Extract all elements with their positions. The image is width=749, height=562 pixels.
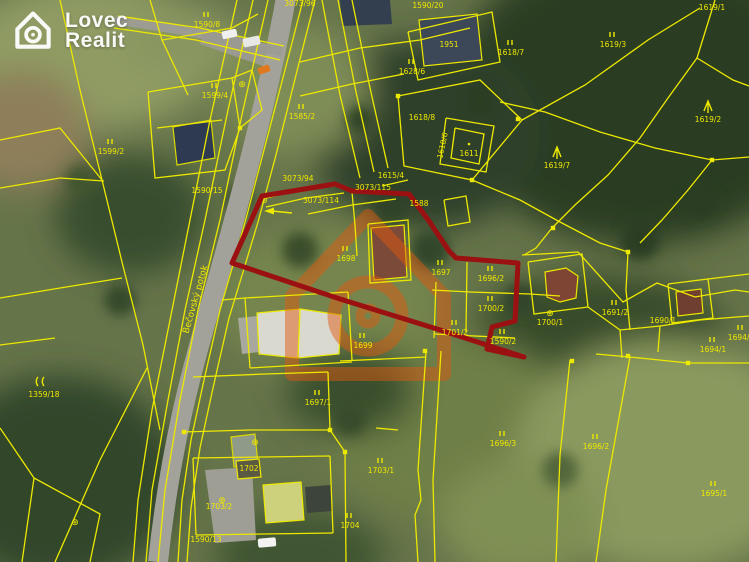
survey-node-marker: [238, 126, 242, 130]
lovec-realit-logo-icon: [10, 8, 56, 54]
building-footprint: [263, 482, 304, 523]
survey-node-marker: [343, 450, 347, 454]
parcel-number-text: 3073/114: [303, 196, 339, 205]
parcel-number-text: 1700/1: [537, 318, 564, 327]
parcel-number-text: 1590/15: [191, 186, 222, 195]
parcel-label: 3073/96: [284, 0, 315, 8]
brand-name-line1: Lovec: [65, 11, 128, 31]
parcel-label: 3073/114: [303, 196, 339, 205]
parcel-number-text: 1698: [336, 254, 355, 263]
parcel-number-text: 1704: [340, 521, 359, 530]
parcel-number-text: 1694/2: [728, 333, 749, 342]
building-footprint: [305, 485, 333, 513]
parcel-number-text: 1590/2: [490, 337, 517, 346]
parcel-number-text: 1691/2: [602, 308, 629, 317]
parcel-number-text: 1702: [239, 464, 258, 473]
survey-node-marker: [182, 430, 186, 434]
survey-node-marker: [570, 359, 574, 363]
parcel-number-text: 3073/96: [284, 0, 315, 8]
parcel-label: 1590/13: [190, 535, 221, 544]
parcel-number-text: 1628/6: [399, 67, 426, 76]
dot-symbol-icon: [468, 143, 471, 146]
parcel-number-text: 1699: [353, 341, 372, 350]
parcel-number-text: 1700/2: [478, 304, 505, 313]
parcel-number-text: 1695/1: [701, 489, 728, 498]
parcel-number-text: 1590/8: [194, 20, 221, 29]
parcel-number-text: 1619/2: [695, 115, 722, 124]
parcel-number-text: 1696/2: [583, 442, 610, 451]
parcel-label: 3073/115: [355, 183, 391, 192]
parcel-number-text: 3073/94: [282, 174, 313, 183]
parcel-number-text: 1599/2: [98, 147, 125, 156]
parcel-number-text: 1585/2: [289, 112, 316, 121]
vehicle: [258, 537, 277, 548]
parcel-number-text: 1615/4: [378, 171, 405, 180]
parcel-number-text: 1618/8: [409, 113, 436, 122]
parcel-number-text: 3073/115: [355, 183, 391, 192]
survey-node-marker: [626, 354, 630, 358]
satellite-cadastral-canvas: ⊕⊕⊕⊕⊕ 1590/83073/961590/2019511618/71619…: [0, 0, 749, 562]
parcel-label: 1619/1: [699, 3, 726, 12]
parcel-number-text: 1696/3: [490, 439, 517, 448]
parcel-number-text: 1696/2: [478, 274, 505, 283]
parcel-label: 1951: [439, 40, 458, 49]
parcel-number-text: 1690/1: [650, 316, 677, 325]
survey-node-marker: [470, 178, 474, 182]
boundary-point-icon: ⊕: [238, 80, 246, 90]
survey-node-marker: [710, 158, 714, 162]
survey-node-marker: [626, 250, 630, 254]
brand-logo: Lovec Realit: [10, 8, 128, 54]
parcel-label: 3073/94: [282, 174, 313, 183]
parcel-number-text: 1359/18: [28, 390, 59, 399]
parcel-number-text: 1590/13: [190, 535, 221, 544]
parcel-label: 1588: [409, 199, 428, 208]
survey-node-marker: [516, 117, 520, 121]
survey-node-marker: [551, 226, 555, 230]
parcel-number-text: 1599/4: [202, 91, 229, 100]
parcel-number-text: 1701/2: [442, 328, 469, 337]
cadastral-map[interactable]: ⊕⊕⊕⊕⊕ 1590/83073/961590/2019511618/71619…: [0, 0, 749, 562]
parcel-label: 1615/4: [378, 171, 405, 180]
building-footprint: [340, 0, 392, 26]
survey-node-marker: [396, 94, 400, 98]
parcel-number-text: 1588: [409, 199, 428, 208]
parcel-label: 1618/8: [409, 113, 436, 122]
building-footprint: [676, 289, 703, 316]
survey-node-marker: [423, 349, 427, 353]
parcel-label: 1590/15: [191, 186, 222, 195]
parcel-label: 1590/20: [412, 1, 443, 10]
parcel-number-text: 1697: [431, 268, 450, 277]
building-footprint: [545, 268, 578, 302]
parcel-label: 1702: [239, 464, 258, 473]
parcel-number-text: 1694/1: [700, 345, 727, 354]
parcel-number-text: 1618/7: [498, 48, 525, 57]
parcel-number-text: 1590/20: [412, 1, 443, 10]
survey-node-marker: [686, 361, 690, 365]
survey-node-marker: [328, 428, 332, 432]
parcel-label: 1690/1: [650, 316, 677, 325]
brand-name-line2: Realit: [65, 31, 128, 51]
parcel-number-text: 1619/7: [544, 161, 571, 170]
parcel-number-text: 1619/3: [600, 40, 627, 49]
boundary-point-icon: ⊕: [251, 438, 259, 448]
boundary-point-icon: ⊕: [71, 518, 79, 528]
parcel-number-text: 1703/2: [206, 502, 233, 511]
parcel-number-text: 1611: [459, 149, 478, 158]
parcel-label: 1703/2: [206, 502, 233, 511]
parcel-number-text: 1951: [439, 40, 458, 49]
parcel-number-text: 1619/1: [699, 3, 726, 12]
parcel-number-text: 1703/1: [368, 466, 395, 475]
parcel-number-text: 1697/1: [305, 398, 332, 407]
